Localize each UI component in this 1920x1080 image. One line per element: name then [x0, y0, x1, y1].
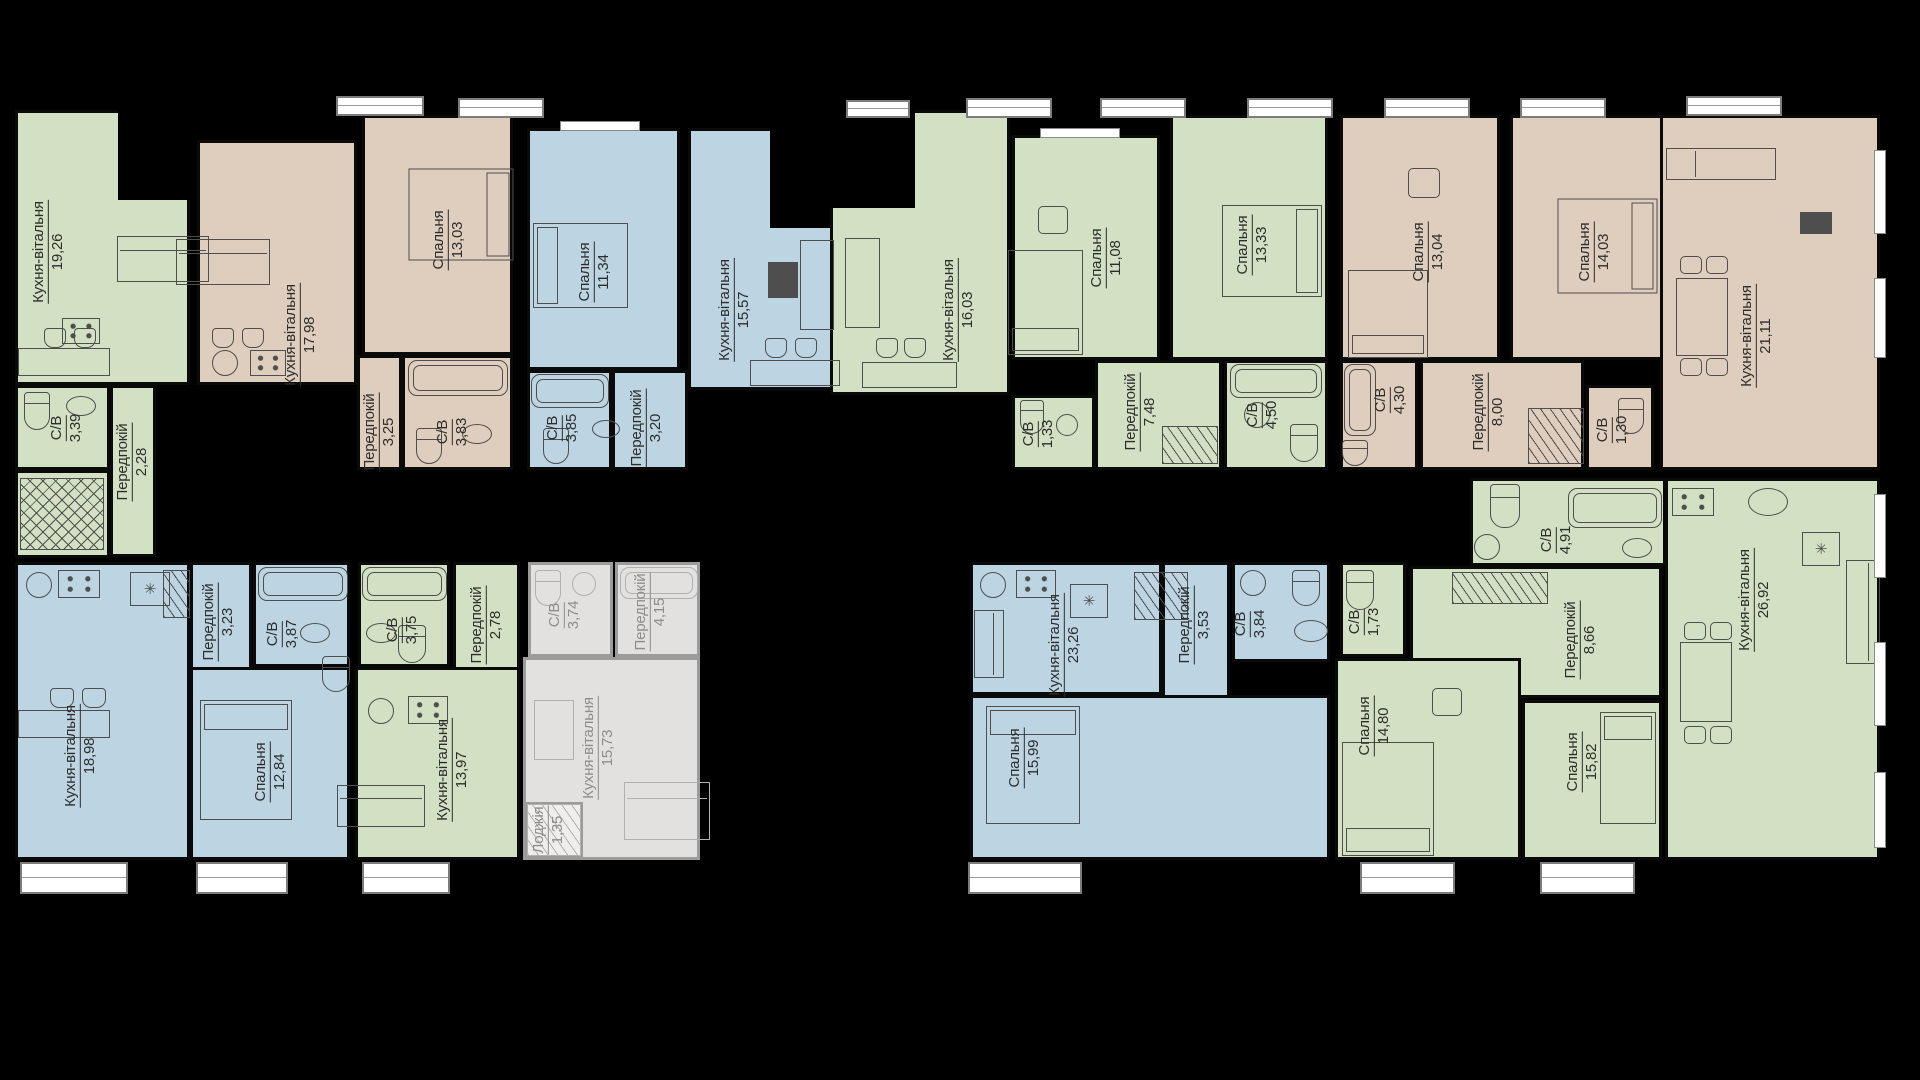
room-bathroom-2[interactable]: [1586, 385, 1654, 470]
room-hallway[interactable]: [110, 385, 156, 557]
room-bathroom[interactable]: [1340, 562, 1406, 657]
room-bedroom-2[interactable]: [1510, 115, 1675, 360]
balcony: [362, 862, 450, 894]
room-bedroom[interactable]: [1335, 658, 1521, 860]
room-bathroom[interactable]: [528, 562, 613, 657]
balcony: [966, 98, 1052, 118]
room-hallway[interactable]: [1162, 562, 1230, 700]
balcony: [196, 862, 288, 894]
balcony: [1540, 862, 1635, 894]
room-bedroom-2[interactable]: [1522, 700, 1662, 860]
room-bedroom[interactable]: [970, 695, 1330, 860]
room-kitchen-living[interactable]: [197, 140, 357, 385]
room-kitchen-living[interactable]: [15, 562, 190, 860]
room-kitchen-living[interactable]: [1665, 478, 1880, 860]
room-bedroom[interactable]: [1012, 135, 1160, 360]
balcony: [968, 862, 1082, 894]
room-utility[interactable]: [15, 470, 110, 558]
room-kitchen-living[interactable]: [355, 667, 520, 860]
balcony: [846, 100, 910, 118]
window: [1874, 772, 1886, 848]
room-bathroom[interactable]: [253, 562, 350, 667]
room-bathroom[interactable]: [1340, 360, 1418, 470]
room-bedroom[interactable]: [190, 667, 350, 860]
room-bathroom[interactable]: [358, 562, 450, 667]
room-bathroom[interactable]: [1232, 562, 1330, 662]
window: [1874, 150, 1886, 234]
window: [1874, 642, 1886, 726]
room-bathroom-2[interactable]: [1470, 478, 1666, 566]
balcony: [1686, 96, 1782, 116]
room-bedroom[interactable]: [527, 128, 680, 370]
room-hallway[interactable]: [612, 370, 688, 470]
room-kitchen-living[interactable]: [15, 110, 190, 385]
balcony: [1520, 98, 1606, 118]
balcony: [458, 98, 544, 118]
room-kitchen-living[interactable]: [830, 110, 1010, 395]
floor-plan: Кухня-вітальня19,26Передпокій2,28С/В3,39…: [0, 0, 1920, 1080]
balcony: [1247, 98, 1333, 118]
room-bedroom-2[interactable]: [1170, 115, 1328, 360]
balcony: [1100, 98, 1186, 118]
room-bathroom[interactable]: [527, 370, 612, 470]
room-bedroom[interactable]: [1340, 115, 1500, 360]
window: [560, 121, 640, 131]
balcony: [1360, 862, 1455, 894]
balcony: [336, 96, 424, 116]
room-hallway[interactable]: [615, 562, 700, 657]
room-bathroom[interactable]: [1012, 395, 1095, 470]
room-hallway[interactable]: [1095, 360, 1222, 470]
balcony: [20, 862, 128, 894]
room-kitchen-living[interactable]: [1660, 115, 1880, 470]
room-kitchen-living[interactable]: [688, 128, 843, 390]
room-hallway[interactable]: [357, 355, 402, 470]
room-hallway[interactable]: [1420, 360, 1584, 470]
window: [1040, 128, 1120, 138]
room-bathroom[interactable]: [402, 355, 513, 470]
room-bathroom[interactable]: [1224, 360, 1328, 470]
window: [1874, 278, 1886, 358]
room-bathroom[interactable]: [15, 385, 110, 470]
room-loggia[interactable]: [525, 802, 583, 858]
balcony: [1384, 98, 1470, 118]
window: [1874, 494, 1886, 578]
room-bedroom[interactable]: [362, 115, 513, 355]
room-kitchen-living[interactable]: [970, 562, 1162, 695]
